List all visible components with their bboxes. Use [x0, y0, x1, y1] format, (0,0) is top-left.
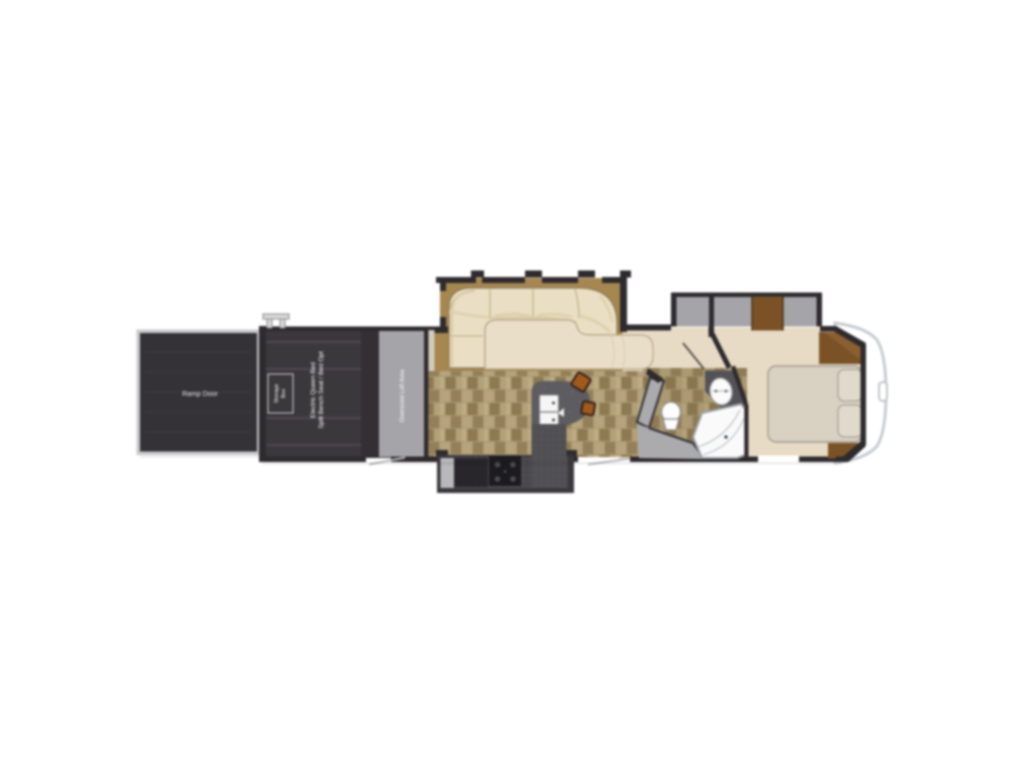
svg-text:Box: Box	[281, 389, 287, 399]
svg-text:Oversized Loft Area: Oversized Loft Area	[400, 369, 406, 422]
svg-text:Storage: Storage	[274, 384, 280, 403]
svg-text:Electric Queen Bed: Electric Queen Bed	[310, 362, 317, 418]
svg-text:Ramp Door: Ramp Door	[182, 391, 218, 398]
svg-text:Split Bench Seat / Bed Opt: Split Bench Seat / Bed Opt	[318, 351, 325, 429]
